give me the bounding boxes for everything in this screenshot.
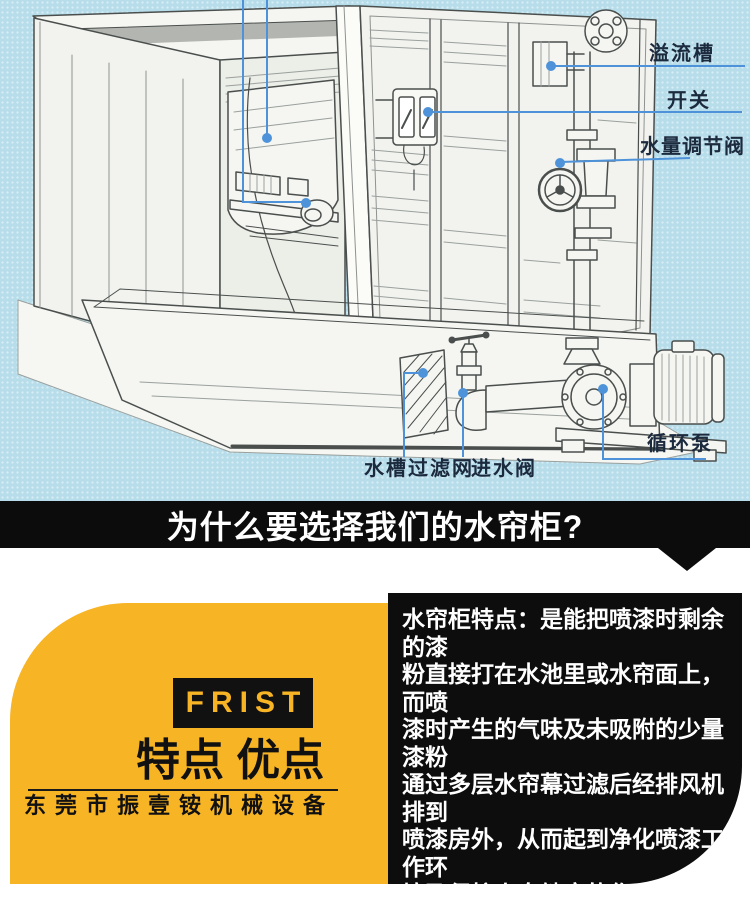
label-overflow-trough: 溢流槽 bbox=[649, 43, 715, 65]
heading-divider bbox=[28, 789, 338, 791]
label-water-inlet-valve: 进水阀 bbox=[471, 458, 537, 480]
label-water-regulating-valve: 水量调节阀 bbox=[640, 136, 745, 158]
section-title: 为什么要选择我们的水帘柜? bbox=[167, 502, 584, 548]
speech-bubble-tail bbox=[658, 548, 716, 571]
brand-name: FRIST bbox=[179, 686, 308, 720]
label-power-switch: 开关 bbox=[667, 90, 711, 112]
section-title-banner: 为什么要选择我们的水帘柜? bbox=[0, 501, 750, 548]
label-tank-filter-screen: 水槽过滤网 bbox=[364, 458, 474, 480]
feature-description-panel: 水帘柜特点：是能把喷漆时剩余的漆 粉直接打在水池里或水帘面上，而喷 漆时产生的气… bbox=[388, 593, 742, 884]
booth-illustration bbox=[0, 0, 750, 501]
filter-mesh bbox=[400, 350, 448, 438]
label-circulation-pump: 循环泵 bbox=[647, 433, 713, 455]
spray-booth-diagram: 溢流槽 开关 水量调节阀 循环泵 水槽过滤网 进水阀 bbox=[0, 0, 750, 501]
features-section: FRIST 特点 优点 东莞市振壹铵机械设备 水帘柜特点：是能把喷漆时剩余的漆 … bbox=[0, 593, 750, 900]
brand-badge: FRIST bbox=[173, 678, 313, 728]
feature-heading: 特点 优点 bbox=[136, 739, 324, 783]
feature-description: 水帘柜特点：是能把喷漆时剩余的漆 粉直接打在水池里或水帘面上，而喷 漆时产生的气… bbox=[402, 606, 736, 884]
company-name: 东莞市振壹铵机械设备 bbox=[24, 794, 334, 818]
pipe-flange bbox=[585, 10, 627, 52]
page-root: { "colors": { "diagram_bg": "#b7ddeb", "… bbox=[0, 0, 750, 900]
